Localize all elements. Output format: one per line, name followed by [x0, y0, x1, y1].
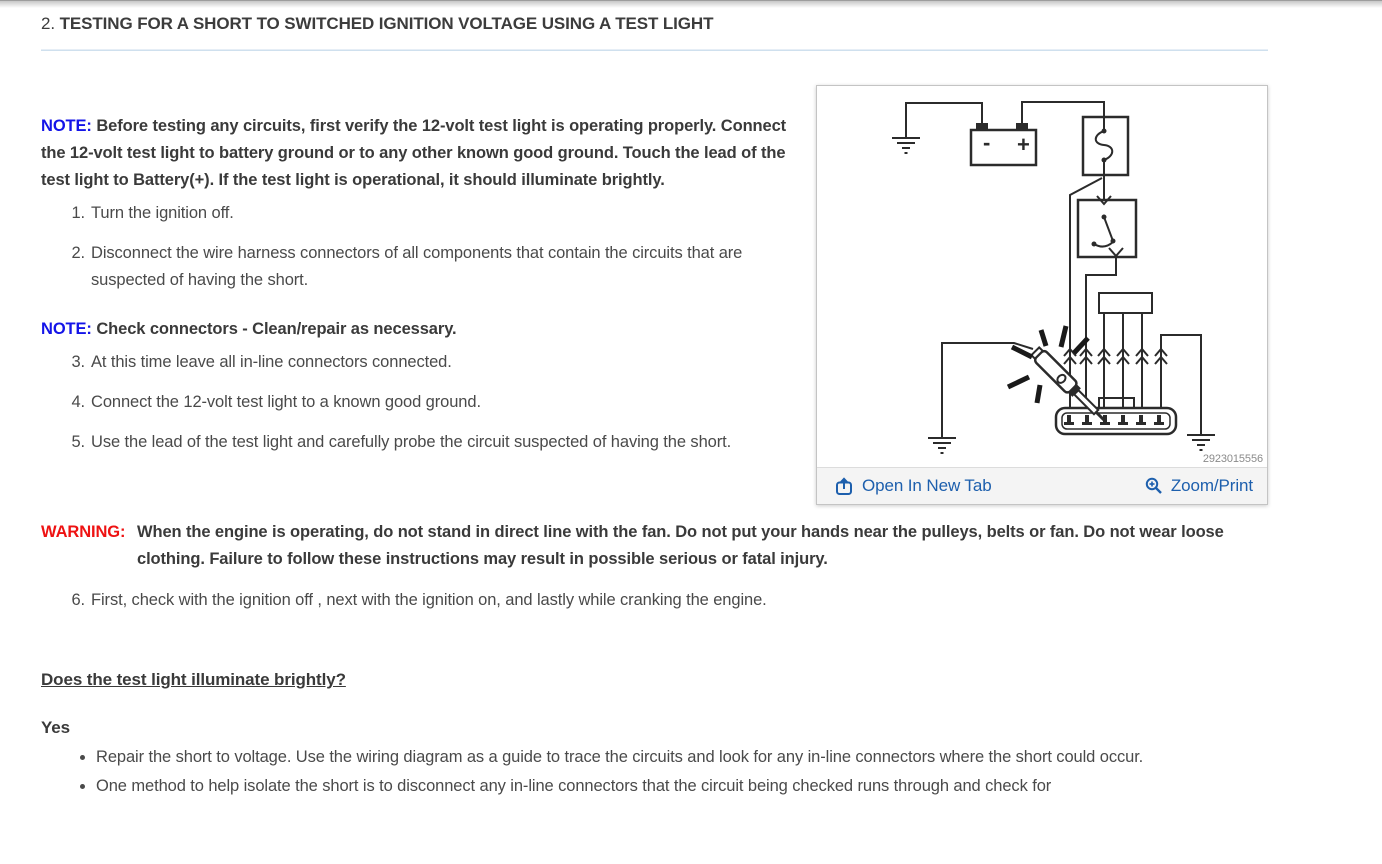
battery: - +	[971, 123, 1036, 165]
open-in-new-tab-icon	[835, 477, 854, 496]
step-list: 6. First, check with the ignition off , …	[41, 587, 1268, 614]
step-number: 5.	[41, 429, 91, 456]
figure-toolbar: Open In New Tab Zoom/Print	[817, 467, 1267, 504]
harness-connector	[1056, 398, 1176, 434]
answer-bullet-list: Repair the short to voltage. Use the wir…	[41, 744, 1268, 800]
section-heading: 2. TESTING FOR A SHORT TO SWITCHED IGNIT…	[41, 14, 1268, 34]
answer-label: Yes	[41, 718, 1268, 738]
step-item: 2. Disconnect the wire harness connector…	[41, 240, 804, 294]
step-item: 1. Turn the ignition off.	[41, 200, 804, 227]
step-text: Turn the ignition off.	[91, 200, 791, 227]
step-item: 6. First, check with the ignition off , …	[41, 587, 1268, 614]
document-page: 2. TESTING FOR A SHORT TO SWITCHED IGNIT…	[0, 0, 1382, 800]
battery-minus-label: -	[983, 130, 990, 155]
note-label: NOTE:	[41, 117, 92, 135]
zoom-print-link[interactable]: Zoom/Print	[1145, 476, 1253, 496]
ground-symbol-top-left	[892, 124, 920, 153]
ground-symbol-bottom-right	[1187, 435, 1215, 450]
step-text: Disconnect the wire harness connectors o…	[91, 240, 791, 294]
battery-ground-wire	[906, 103, 982, 126]
open-in-new-tab-link[interactable]: Open In New Tab	[835, 476, 992, 496]
answer-bullet: Repair the short to voltage. Use the wir…	[96, 744, 1268, 771]
ground-symbol-bottom-left	[928, 438, 956, 453]
diagnostic-question: Does the test light illuminate brightly?	[41, 670, 1268, 690]
step-text: At this time leave all in-line connector…	[91, 349, 791, 376]
step-text: Connect the 12-volt test light to a know…	[91, 389, 791, 416]
fuse	[1083, 117, 1128, 200]
section-number: 2.	[41, 14, 55, 33]
figure-panel: - +	[816, 85, 1268, 505]
wiring-diagram-image[interactable]: - +	[817, 86, 1267, 467]
zoom-print-label: Zoom/Print	[1171, 476, 1253, 496]
right-ground-wire	[1161, 335, 1201, 435]
step-item: 3. At this time leave all in-line connec…	[41, 349, 804, 376]
note-label: NOTE:	[41, 320, 92, 338]
warning-label: WARNING:	[41, 519, 137, 573]
step-item: 4. Connect the 12-volt test light to a k…	[41, 389, 804, 416]
figure-number: 2923015556	[1203, 453, 1263, 465]
open-in-new-tab-label: Open In New Tab	[862, 476, 992, 496]
step-text: Use the lead of the test light and caref…	[91, 429, 791, 456]
step-number: 6.	[41, 587, 91, 614]
switch-output-wire	[1086, 256, 1116, 408]
step-number: 1.	[41, 200, 91, 227]
step-number: 4.	[41, 389, 91, 416]
warning-block: WARNING: When the engine is operating, d…	[41, 519, 1268, 573]
note-text: Before testing any circuits, first verif…	[41, 117, 786, 189]
wiring-diagram-svg: - +	[817, 86, 1267, 467]
zoom-icon	[1145, 477, 1163, 495]
battery-positive-wire	[1022, 102, 1104, 124]
step-item: 5. Use the lead of the test light and ca…	[41, 429, 804, 456]
step-number: 3.	[41, 349, 91, 376]
circuit-arrows	[1064, 349, 1167, 364]
step-number: 2.	[41, 240, 91, 294]
answer-bullet: One method to help isolate the short is …	[96, 773, 1268, 800]
step-text: First, check with the ignition off , nex…	[91, 587, 1268, 614]
note-text: Check connectors - Clean/repair as neces…	[96, 320, 456, 338]
battery-plus-label: +	[1017, 132, 1030, 157]
test-light-ground-wire	[942, 343, 1033, 438]
ignition-switch	[1078, 196, 1136, 257]
warning-text: When the engine is operating, do not sta…	[137, 519, 1268, 573]
section-content: - +	[41, 51, 1268, 800]
section-title: TESTING FOR A SHORT TO SWITCHED IGNITION…	[60, 14, 714, 33]
test-light	[1008, 326, 1111, 427]
